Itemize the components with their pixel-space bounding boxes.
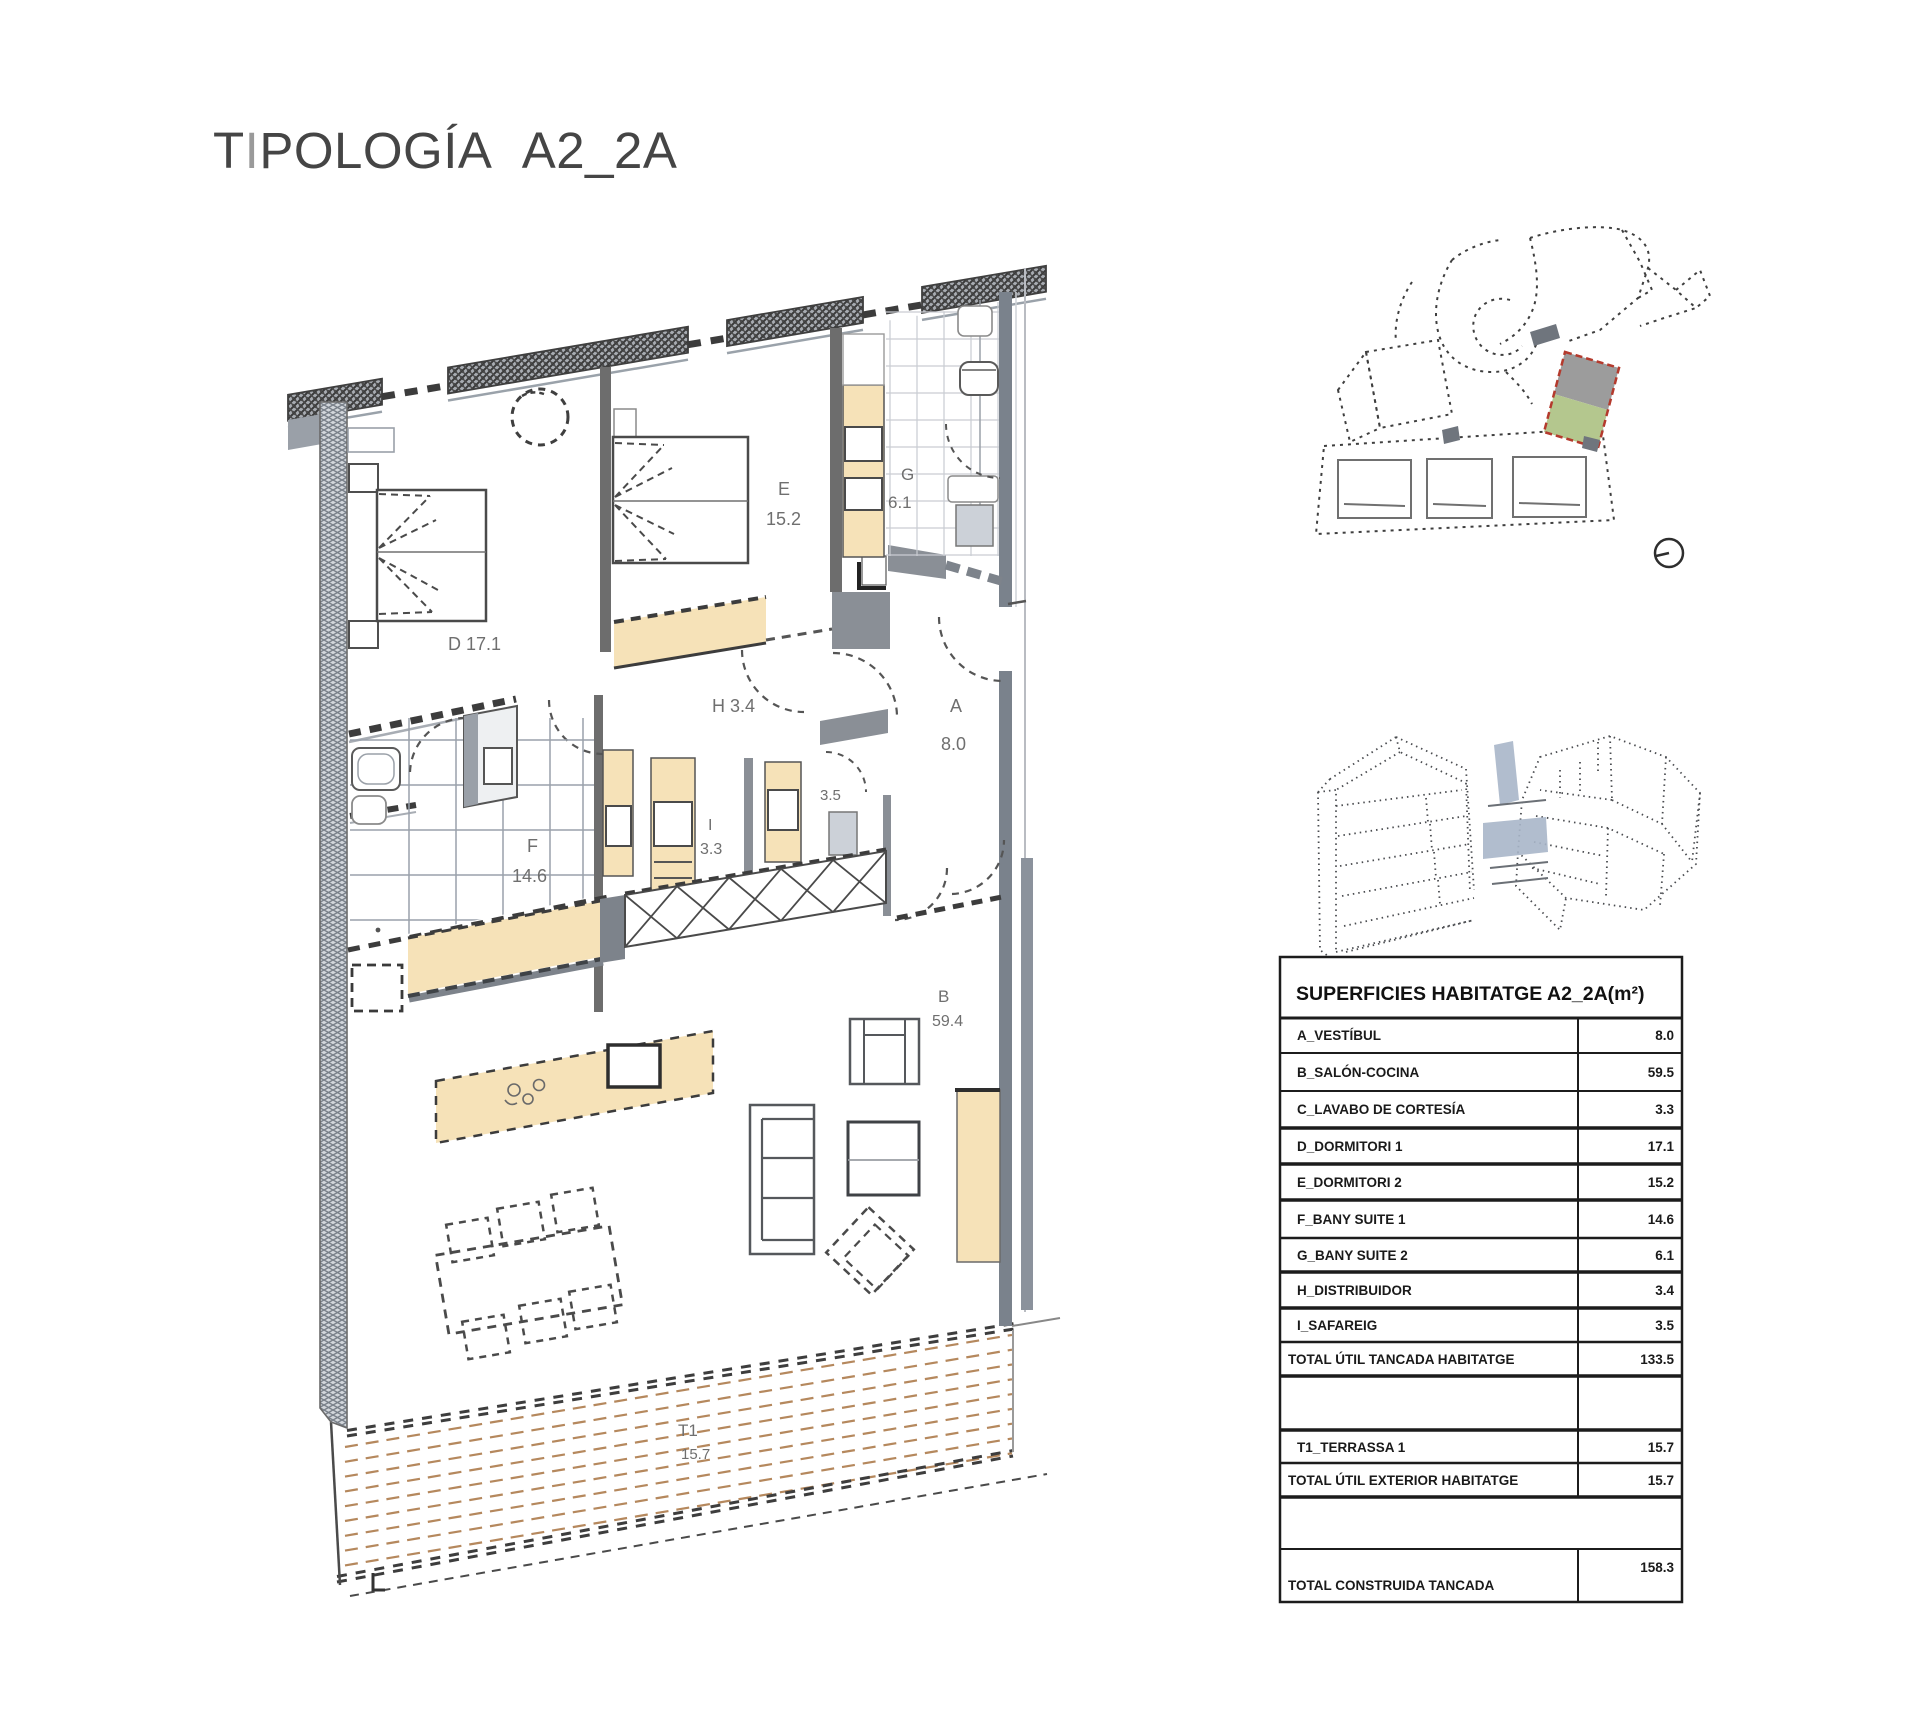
svg-text:T1: T1 xyxy=(678,1421,698,1440)
svg-text:B_SALÓN-COCINA: B_SALÓN-COCINA xyxy=(1297,1065,1420,1080)
svg-text:TOTAL CONSTRUIDA TANCADA: TOTAL CONSTRUIDA TANCADA xyxy=(1288,1578,1494,1593)
svg-text:59.5: 59.5 xyxy=(1648,1065,1675,1080)
svg-text:H 3.4: H 3.4 xyxy=(712,696,755,716)
svg-text:TOTAL ÚTIL EXTERIOR HABITATGE: TOTAL ÚTIL EXTERIOR HABITATGE xyxy=(1288,1473,1518,1488)
svg-text:59.4: 59.4 xyxy=(932,1013,963,1030)
svg-text:TOTAL ÚTIL TANCADA HABITATGE: TOTAL ÚTIL TANCADA HABITATGE xyxy=(1288,1352,1514,1367)
svg-text:G_BANY SUITE 2: G_BANY SUITE 2 xyxy=(1297,1248,1408,1263)
svg-text:I: I xyxy=(708,817,712,834)
svg-text:8.0: 8.0 xyxy=(941,734,966,754)
svg-text:E_DORMITORI 2: E_DORMITORI 2 xyxy=(1297,1175,1402,1190)
svg-text:F_BANY SUITE 1: F_BANY SUITE 1 xyxy=(1297,1212,1406,1227)
svg-text:15.7: 15.7 xyxy=(1648,1440,1674,1455)
svg-text:F: F xyxy=(527,836,538,856)
svg-text:6.1: 6.1 xyxy=(1655,1248,1674,1263)
svg-text:8.0: 8.0 xyxy=(1655,1028,1674,1043)
svg-text:133.5: 133.5 xyxy=(1640,1352,1674,1367)
svg-text:15.2: 15.2 xyxy=(1648,1175,1674,1190)
svg-text:SUPERFICIES HABITATGE A2_2A(m²: SUPERFICIES HABITATGE A2_2A(m²) xyxy=(1296,983,1645,1005)
svg-text:A_VESTÍBUL: A_VESTÍBUL xyxy=(1297,1028,1381,1043)
svg-text:H_DISTRIBUIDOR: H_DISTRIBUIDOR xyxy=(1297,1283,1412,1298)
svg-text:14.6: 14.6 xyxy=(512,866,547,886)
svg-text:D_DORMITORI 1: D_DORMITORI 1 xyxy=(1297,1139,1403,1154)
svg-text:14.6: 14.6 xyxy=(1648,1212,1675,1227)
svg-text:3.3: 3.3 xyxy=(700,841,722,858)
svg-text:158.3: 158.3 xyxy=(1640,1560,1674,1575)
svg-text:D 17.1: D 17.1 xyxy=(448,634,501,654)
svg-text:3.5: 3.5 xyxy=(1655,1318,1674,1333)
svg-text:15.2: 15.2 xyxy=(766,509,801,529)
svg-text:G: G xyxy=(901,465,914,484)
svg-text:E: E xyxy=(778,479,790,499)
svg-text:17.1: 17.1 xyxy=(1648,1139,1675,1154)
svg-text:C_LAVABO DE CORTESÍA: C_LAVABO DE CORTESÍA xyxy=(1297,1102,1466,1117)
svg-text:3.3: 3.3 xyxy=(1655,1102,1674,1117)
svg-text:3.5: 3.5 xyxy=(820,787,841,804)
svg-text:B: B xyxy=(938,987,949,1006)
svg-text:I_SAFAREIG: I_SAFAREIG xyxy=(1297,1318,1377,1333)
svg-text:15.7: 15.7 xyxy=(1648,1473,1674,1488)
svg-text:15.7: 15.7 xyxy=(681,1446,710,1463)
svg-text:6.1: 6.1 xyxy=(888,493,912,512)
svg-text:T1_TERRASSA 1: T1_TERRASSA 1 xyxy=(1297,1440,1406,1455)
svg-text:3.4: 3.4 xyxy=(1655,1283,1674,1298)
svg-text:A: A xyxy=(950,696,962,716)
